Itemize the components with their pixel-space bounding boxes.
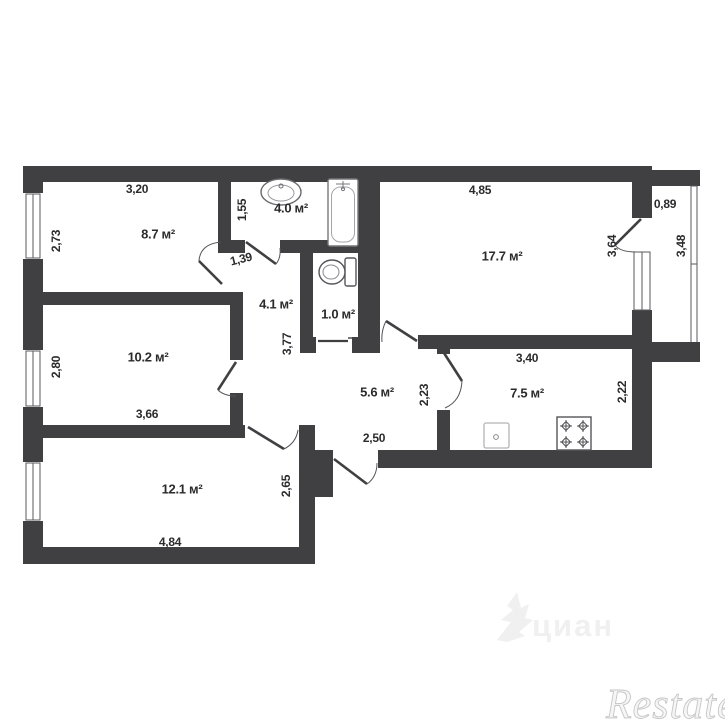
wall-bedroom1-bedroom2 [23,292,243,305]
kitchen-sink-icon [484,423,509,448]
walls [23,166,700,564]
living-area-label: 17.7 м² [482,249,524,264]
dim-bathroom-side: 1,55 [235,198,249,221]
dim-bedroom1-width: 3,20 [126,182,149,196]
hall-area-label: 4.1 м² [259,297,294,312]
watermarks: циан Restate [497,592,725,725]
wall-wc-bottom-right [352,337,380,353]
dim-bedroom3-side: 2,65 [279,474,293,497]
stove-icon [557,417,591,450]
wall-corridor-kitchen-bottom [437,410,450,450]
balcony-glazing [691,186,697,342]
dim-hall-side: 3,77 [280,332,294,355]
door-living [382,321,417,342]
bedroom3-area-label: 12.1 м² [162,482,204,497]
bedroom1-area-label: 8.7 м² [141,227,176,242]
window-living-balcony [632,252,652,310]
wc-area-label: 1.0 м² [321,307,356,322]
corridor-area-label: 5.6 м² [360,385,395,400]
wall-living-kitchen [418,335,652,349]
bedroom2-area-label: 10.2 м² [128,350,170,365]
dim-corridor-side: 2,23 [417,383,431,406]
kitchen-area-label: 7.5 м² [510,386,545,401]
restate-watermark-text: Restate [605,682,725,725]
cian-bird-icon [497,592,533,642]
floor-plan-drawing: 8.7 м² 4.0 м² 4.1 м² 1.0 м² 17.7 м² 10.2… [0,0,725,725]
dim-balcony-side: 3,48 [674,234,688,257]
door-kitchen [444,353,462,408]
dim-bedroom2-width: 3,66 [136,407,159,421]
wall-wc-left [300,253,313,341]
dim-living-width: 4,85 [469,183,492,197]
dim-living-side: 3,64 [605,234,619,257]
wall-kitchen-right [632,342,652,468]
wall-balcony-left-bottom [632,310,652,342]
wall-entry-stub [315,450,333,497]
wall-bedroom2-right-bottom [230,393,243,425]
dim-kitchen-width: 3,40 [516,351,539,365]
window-bedroom3 [23,462,43,521]
wall-bedroom1-bathroom [218,182,231,240]
door-bedroom3 [248,427,298,449]
cian-watermark-text: циан [532,608,614,643]
toilet-icon [319,258,356,286]
bathroom-area-label: 4.0 м² [274,201,309,216]
wall-bedroom3-right [299,425,315,547]
door-entrance [334,459,377,484]
dim-corridor-width: 2,50 [363,431,386,445]
wall-balcony-left-top [632,182,652,218]
wall-balcony-top [652,170,700,186]
floor-plan-page: 8.7 м² 4.0 м² 4.1 м² 1.0 м² 17.7 м² 10.2… [0,0,725,725]
dim-bedroom1-side: 2,73 [49,229,63,252]
wall-wc-living [358,182,380,350]
window-bedroom1 [23,193,43,259]
wall-outer-bottom [23,547,315,564]
wall-bottom-right [378,450,652,468]
dim-balcony-width: 0,89 [654,197,677,211]
wall-bedroom2-right-top [230,305,243,360]
door-bedroom2 [218,362,236,396]
wall-wc-bottom-left [300,337,316,353]
dim-bedroom2-side: 2,80 [49,355,63,378]
wall-bedroom2-bottom [23,425,245,438]
bathtub-icon [328,179,358,246]
window-bedroom2 [23,350,43,407]
dim-kitchen-side: 2,22 [615,380,629,403]
dim-bedroom3-width: 4,84 [159,535,182,549]
